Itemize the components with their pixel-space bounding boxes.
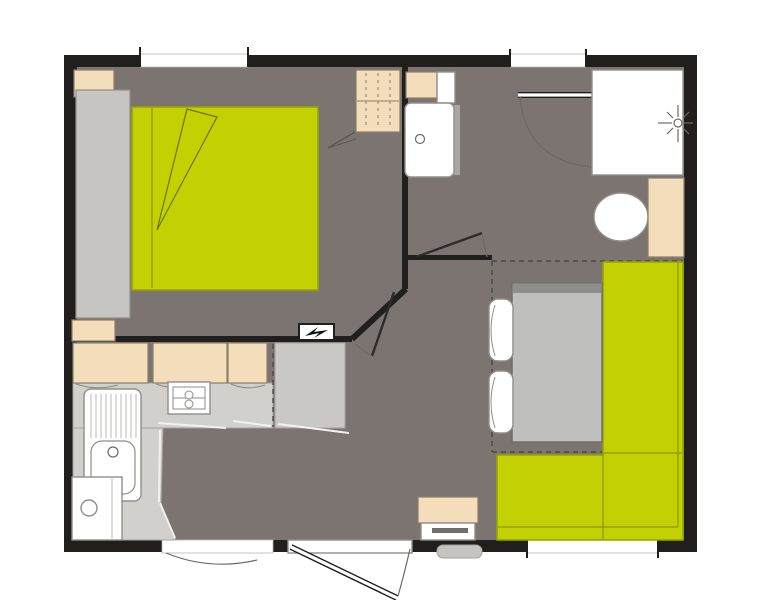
basin-shelf bbox=[437, 72, 455, 103]
table-shadow bbox=[513, 284, 601, 293]
entry-step bbox=[437, 545, 482, 558]
window-tick bbox=[526, 539, 528, 558]
double-bed bbox=[132, 107, 318, 290]
bedroom-window bbox=[140, 54, 248, 67]
bathroom-cabinet bbox=[648, 178, 684, 257]
basin-cabinet bbox=[406, 72, 437, 98]
sink-faucet bbox=[108, 447, 118, 457]
burner bbox=[185, 400, 193, 408]
heater-cabinet bbox=[418, 497, 478, 523]
burner bbox=[185, 391, 193, 399]
wall-right bbox=[684, 55, 697, 552]
chair bbox=[489, 371, 513, 433]
heater-vent bbox=[432, 528, 468, 533]
entry-door-swing bbox=[398, 549, 410, 596]
wardrobe bbox=[76, 90, 130, 318]
window-tick bbox=[139, 47, 141, 67]
entry-door-opening bbox=[288, 540, 412, 553]
fridge-unit bbox=[275, 343, 345, 428]
window-tick bbox=[247, 47, 249, 67]
bathroom-window bbox=[510, 54, 586, 67]
dining-table bbox=[512, 283, 602, 442]
counter-edge-highlight bbox=[159, 430, 160, 502]
floor-plan-drawing bbox=[0, 0, 769, 600]
window-tick bbox=[585, 49, 587, 67]
basin-faucet bbox=[416, 135, 425, 144]
floor-plan bbox=[0, 0, 769, 600]
wall-cabinet bbox=[73, 343, 148, 383]
secondary-opening-swing bbox=[166, 553, 257, 564]
living-window bbox=[527, 540, 658, 553]
chair bbox=[489, 299, 513, 361]
entry-door-leaf bbox=[291, 547, 397, 598]
low-cabinet bbox=[72, 320, 115, 341]
wall-cabinet bbox=[153, 343, 227, 383]
washbasin bbox=[405, 103, 454, 177]
appliance-dial bbox=[81, 500, 97, 516]
toilet bbox=[594, 193, 648, 241]
window-tick bbox=[657, 539, 659, 558]
window-tick bbox=[509, 49, 511, 67]
secondary-opening bbox=[162, 540, 273, 553]
wall-cabinet bbox=[228, 343, 267, 383]
